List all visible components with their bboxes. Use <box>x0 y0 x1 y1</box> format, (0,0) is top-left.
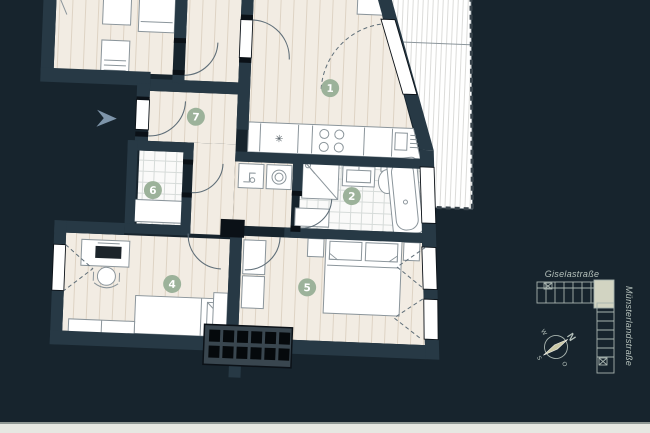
chimney-block <box>203 324 293 367</box>
kitchen-sink-icon: ✳ <box>275 134 284 145</box>
room-5-number: 5 <box>303 282 311 294</box>
double-bed-icon <box>323 237 402 316</box>
nightstand-icon <box>307 238 324 257</box>
room-7-number: 7 <box>192 111 200 123</box>
entry-door <box>135 99 149 129</box>
room-4-window <box>52 244 66 290</box>
shower-icon <box>302 160 339 199</box>
armchair-icon <box>138 0 176 33</box>
sofa-icon <box>103 0 133 25</box>
room-2-number: 2 <box>348 191 356 203</box>
street-label-giselastrasse: Giselastraße <box>545 269 600 279</box>
nightstand-icon <box>403 242 420 261</box>
dryer-icon <box>238 164 264 189</box>
floorplan-canvas: ✳ <box>0 0 650 433</box>
washer-icon <box>266 165 292 190</box>
bedroom-window <box>422 299 440 340</box>
room-1-number: 1 <box>326 83 334 95</box>
shelf-icon <box>129 199 184 223</box>
bedroom-window <box>420 247 439 290</box>
footer-strip <box>0 422 650 433</box>
floorplan-page: ✳ <box>0 0 650 433</box>
desk-icon <box>81 239 130 267</box>
street-label-muensterlandstrasse: Münsterlandstraße <box>624 286 634 366</box>
vestibule-floor <box>184 0 242 82</box>
room-6-number: 6 <box>149 185 157 197</box>
room-4-number: 4 <box>168 279 176 291</box>
